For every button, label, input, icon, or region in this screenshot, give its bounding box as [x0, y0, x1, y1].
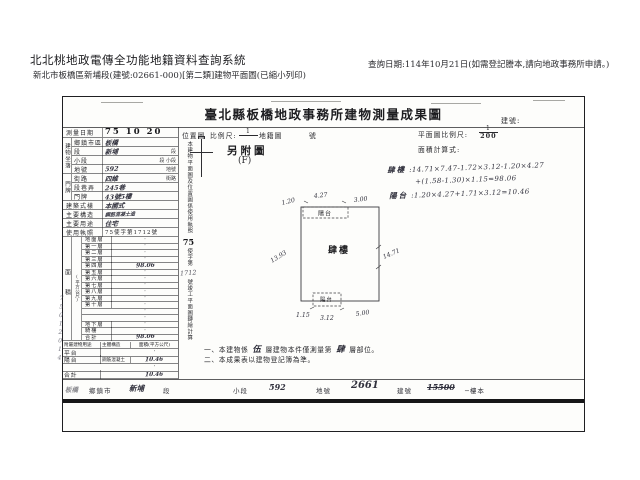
crosshair-icon: [190, 139, 213, 179]
note-text: 層建物本件僅測量第: [266, 346, 333, 354]
old-building-no: 15500: [427, 382, 455, 392]
row-label: 鄉鎮市區: [72, 138, 103, 147]
plan-scale-label: 平面圖比例尺:: [418, 129, 468, 139]
floor-area: 98.06: [135, 263, 154, 269]
calc-name: 肆樓: [387, 165, 406, 175]
row-label: 段巷弄: [72, 183, 103, 192]
scan-artifact: [533, 100, 565, 101]
query-date: 查詢日期:114年10月21日(如需登記謄本,請向地政事務所申請。): [368, 58, 609, 70]
address-group-label: 門牌: [63, 174, 72, 201]
dim-right: 14.71: [382, 247, 401, 261]
annex-area: ·: [131, 349, 178, 355]
row-suffix: 段: [171, 148, 178, 155]
strip-number: 75: [183, 237, 194, 247]
top-balcony-label: 陽台: [318, 210, 332, 218]
building-no-value: 2661: [351, 380, 379, 391]
dim-top-left: 1.20: [281, 197, 296, 207]
row-value: 住宅: [105, 218, 119, 228]
annex-col-area: 面積(平方公尺): [131, 342, 178, 348]
row-label: 主要構造: [63, 210, 103, 219]
row-label: 街路: [72, 174, 103, 183]
dim-left: 13.93: [269, 249, 288, 264]
county-value: 板橋: [65, 384, 78, 394]
strip-text: 號竣工平面圖轉繪計算: [186, 279, 191, 341]
row-suffix: 段 小段: [159, 157, 178, 164]
area-group: 面積 (平方公尺) 地面層· 第一層· 第二層· 第三層· 第四層98.06 第…: [63, 237, 178, 341]
floor-area: ·: [112, 276, 178, 282]
dim-bottom-right: 5.00: [355, 309, 370, 318]
system-title: 北北桃地政電傳全功能地籍資料查詢系統: [30, 52, 246, 68]
annex-col-structure: 主體構造: [101, 342, 131, 348]
parcel-value: 592: [269, 382, 286, 392]
row-label: 地號: [72, 165, 103, 174]
floor-area: ·: [112, 308, 178, 314]
dim-bottom-mid: 3.12: [320, 315, 334, 322]
scale-fraction: 1: [239, 128, 258, 136]
area-group-label: 面積: [63, 237, 72, 341]
survey-date-label: 測量日期: [63, 128, 103, 137]
annex-use: 陽台: [63, 355, 101, 364]
row-label: 使用執照: [63, 228, 103, 237]
plan-scale-denominator: 200: [480, 133, 497, 140]
plan-scale-fraction: 1200: [479, 126, 498, 140]
location-group: 建物坐落 鄉鎮市區 板橋 段 新埔段 小段 段 小段 地號: [63, 138, 178, 174]
building-row: 使用執照 75使字第1712號: [63, 228, 178, 237]
dim-bottom-left: 1.15: [296, 312, 310, 319]
note-2: 二、本成果表以建物登記簿為準。: [204, 354, 315, 364]
parcel-label: 地號: [316, 385, 331, 395]
floor-area: ·: [112, 321, 178, 327]
floor-area: ·: [112, 269, 178, 275]
floor-area: ·: [112, 282, 178, 288]
strip-text: 使字第: [186, 248, 191, 267]
survey-date-value: 75 10 20: [105, 127, 162, 137]
floor-area: ·: [112, 250, 178, 256]
attached-figure-sub: (F): [238, 156, 251, 166]
tick-mark: [376, 245, 381, 249]
row-label: 主要用途: [63, 219, 103, 228]
building-no-strip-label: 建號: [397, 385, 412, 395]
survey-form: 測量日期 75 10 20 建物坐落 鄉鎮市區 板橋 段 新埔段 小段: [63, 127, 178, 379]
floor-area: ·: [112, 295, 178, 301]
floor-label: 第十層: [82, 301, 112, 308]
annex-structure: 鋼筋混凝土: [101, 357, 131, 363]
note-text: 層部位。: [349, 346, 379, 354]
row-value: 鋼筋混凝土造: [105, 211, 135, 218]
floor-area: ·: [112, 237, 178, 243]
note-text: 一、本建物係: [204, 346, 248, 354]
annex-total-row: 合計 10.46: [63, 372, 178, 380]
address-group: 門牌 街路 四維街路 段巷弄 245巷 門牌 43號5樓: [63, 174, 178, 201]
row-label: 門牌: [72, 192, 103, 201]
annex-use: 合計: [63, 370, 101, 379]
row-label: 建築式樣: [63, 201, 103, 210]
row-label: 小段: [72, 156, 103, 165]
row-suffix: 街路: [166, 175, 178, 182]
area-total-row: 合計98.06: [82, 335, 178, 342]
bottom-balcony-label: 陽台: [320, 296, 333, 304]
row-suffix: 地號: [166, 166, 178, 173]
dim-top: 4.27: [312, 192, 327, 201]
location-group-label: 建物坐落: [63, 138, 72, 174]
print-info: 新北市板橋區新埔段(建號:02661-000)[第二類]建物平面圖(已縮小列印): [33, 69, 306, 81]
floor-area: ·: [112, 302, 178, 308]
strip-handwriting: 1712: [180, 268, 197, 277]
floor-plan-diagram: 陽台 陽台 肆樓 4.27 3.00 1.20 13.93 14.71 1.15…: [268, 189, 433, 341]
tick-mark: [376, 265, 381, 269]
row-value: 75使字第1712號: [105, 228, 158, 236]
tick-mark: [310, 307, 314, 309]
floor-area: ·: [112, 243, 178, 249]
floor-area: ·: [112, 315, 178, 321]
tick-mark: [342, 201, 346, 203]
row-label: 段: [72, 147, 103, 156]
scale-label: 比例尺:: [210, 130, 237, 140]
tick-mark: [304, 201, 308, 203]
scanned-document: 臺北縣板橋地政事務所建物測量成果圖 建號: 測量日期 75 10 20 建物坐落…: [62, 96, 585, 432]
annex-area: ·: [131, 364, 178, 370]
floor-area: ·: [112, 256, 178, 262]
tick-mark: [340, 308, 344, 310]
page: 北北桃地政電傳全功能地籍資料查詢系統 新北市板橋區新埔段(建號:02661-00…: [0, 0, 640, 480]
bottom-strip: 板橋 鄉鎮市 新埔 段 小段 592 地號 2661 建號 15500 ─樓本: [63, 381, 584, 398]
main-label: 肆樓: [328, 244, 350, 256]
row-value: 本國式: [105, 200, 125, 210]
annex-col-use: 附屬建物用途: [63, 342, 101, 348]
subsection-label: 小段: [233, 385, 248, 395]
no-label: 號: [309, 130, 317, 140]
annex-area: 10.46: [145, 357, 164, 363]
annex-area: 10.46: [145, 372, 164, 378]
total-label: 合計: [82, 334, 112, 341]
area-unit-label: (平方公尺): [72, 237, 82, 341]
floor-area: ·: [112, 328, 178, 334]
annex-row: 陽台 鋼筋混凝土 10.46: [63, 357, 178, 365]
building-no-label: 建號:: [501, 116, 520, 126]
note-handwriting: 肆: [336, 345, 345, 355]
note-text: 二、本成果表以建物登記簿為準。: [204, 356, 315, 364]
dim-top-right: 3.00: [353, 196, 367, 204]
cadastral-label: 地籍圖: [259, 130, 282, 140]
bottom-thick-rule: [63, 399, 584, 403]
township-label: 鄉鎮市: [89, 385, 112, 395]
total-area: 98.06: [135, 334, 154, 340]
scale-numerator: 1: [239, 129, 258, 136]
row-value: 592: [105, 165, 119, 173]
strip-tail: ─樓本: [465, 385, 485, 395]
form-bottom-rule: [63, 379, 584, 380]
scan-artifact: [101, 102, 143, 103]
section-label: 段: [163, 385, 171, 395]
section-value: 新埔: [129, 383, 144, 394]
calc-label: 面積計算式:: [418, 144, 460, 154]
scan-artifact: [271, 101, 341, 102]
floor-area: ·: [112, 289, 178, 295]
row-value: 新埔: [105, 146, 119, 156]
